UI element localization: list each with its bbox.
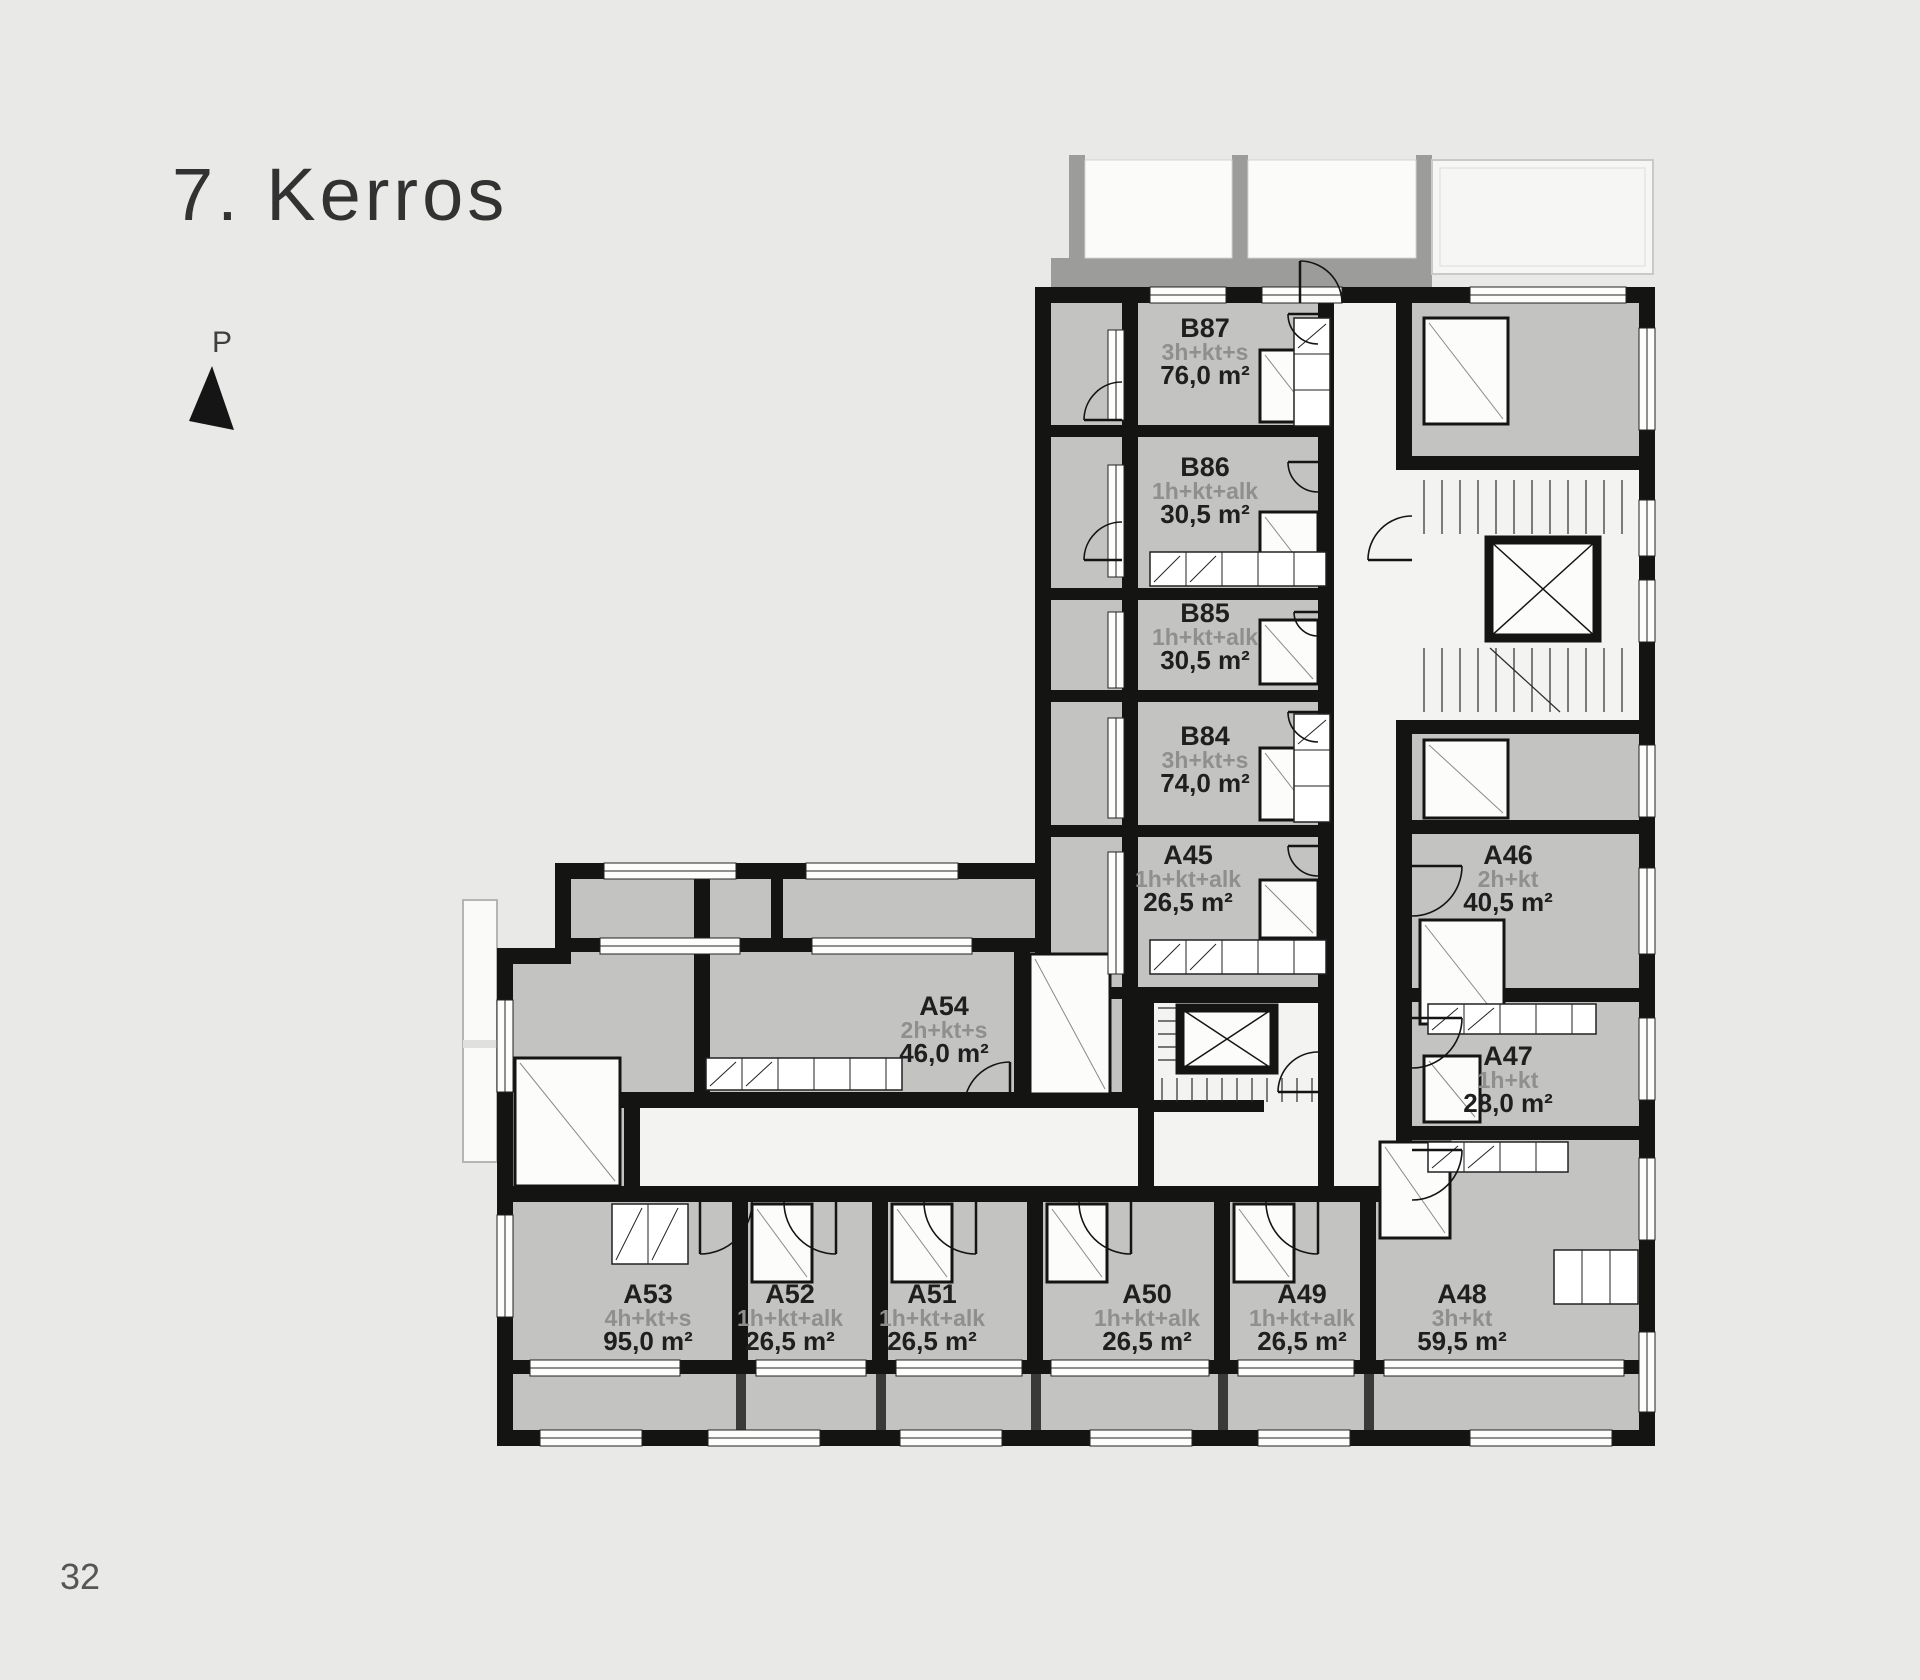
apartment-area: 30,5 m² (1160, 645, 1250, 675)
roof-balconies (1051, 155, 1653, 290)
brochure-page: 7. Kerros P 32 (0, 0, 1920, 1680)
apartment-area: 30,5 m² (1160, 499, 1250, 529)
floor-plan: B87 3h+kt+s 76,0 m² B86 1h+kt+alk 30,5 m… (0, 0, 1920, 1680)
apartment-area: 26,5 m² (1102, 1326, 1192, 1356)
apartment-area: 74,0 m² (1160, 768, 1250, 798)
apartment-area: 26,5 m² (1257, 1326, 1347, 1356)
apartment-area: 46,0 m² (899, 1038, 989, 1068)
apartment-area: 76,0 m² (1160, 360, 1250, 390)
apartment-area: 40,5 m² (1463, 887, 1553, 917)
apartment-area: 59,5 m² (1417, 1326, 1507, 1356)
west-balcony-strip (463, 900, 497, 1162)
apartment-area: 26,5 m² (1143, 887, 1233, 917)
apartment-area: 95,0 m² (603, 1326, 693, 1356)
apartment-area: 26,5 m² (887, 1326, 977, 1356)
apartment-area: 28,0 m² (1463, 1088, 1553, 1118)
apartment-area: 26,5 m² (745, 1326, 835, 1356)
